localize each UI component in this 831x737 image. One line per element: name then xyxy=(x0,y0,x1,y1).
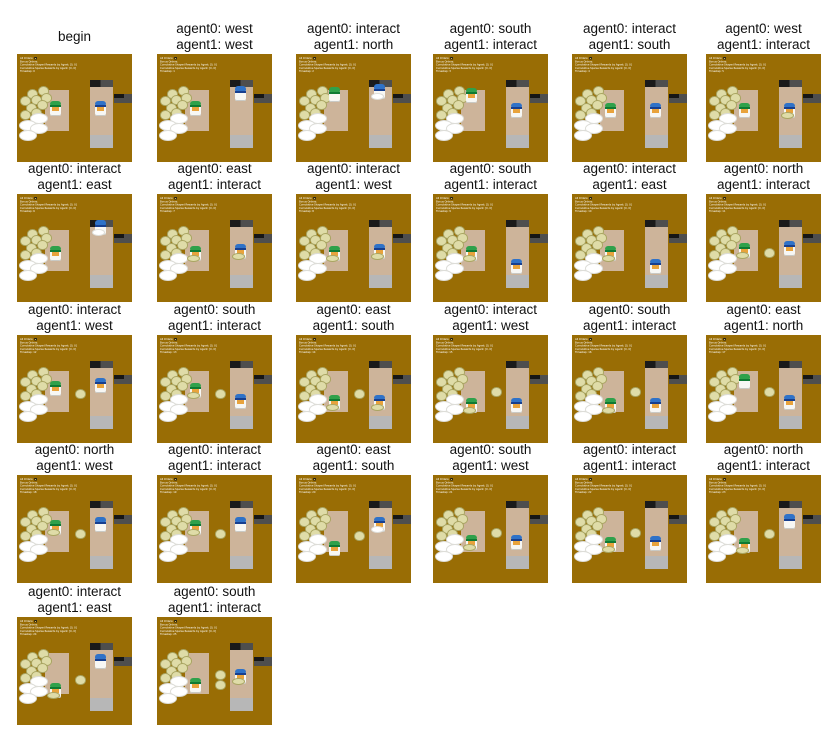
hud-timestep: Timestep: 15 xyxy=(436,351,528,354)
hud-timestep: Timestep: 4 xyxy=(575,70,667,73)
held-onion-icon xyxy=(602,255,615,262)
plate-dispenser-icon xyxy=(574,270,592,281)
step-caption: agent0: northagent1: interact xyxy=(706,440,821,475)
agent1-sprite xyxy=(511,398,522,413)
caption-line-0: agent0: east xyxy=(316,442,390,458)
agent0-body xyxy=(466,98,477,103)
trajectory-cell-12: agent0: interactagent1: westAll Orders:B… xyxy=(17,300,156,443)
held-onion-icon xyxy=(781,112,794,119)
held-plate-icon xyxy=(371,526,384,533)
hud-timestep: Timestep: 2 xyxy=(299,70,391,73)
held-plate-icon xyxy=(371,93,384,100)
pot-right-icon xyxy=(530,234,548,243)
counter-onion-icon xyxy=(75,675,86,685)
agent0-sprite xyxy=(190,246,201,261)
serving-area xyxy=(506,556,529,569)
soup-order-icon xyxy=(723,197,726,200)
agent0-sprite xyxy=(190,383,201,398)
agent1-sprite xyxy=(235,244,246,259)
pot-top-icon xyxy=(230,501,253,508)
agent0-sprite xyxy=(50,381,61,396)
agent0-body xyxy=(50,256,61,261)
soup-order-icon xyxy=(174,197,177,200)
caption-line-1: agent1: interact xyxy=(583,458,676,474)
caption-line-0: agent0: interact xyxy=(28,584,121,600)
serving-area xyxy=(506,275,529,288)
serving-area xyxy=(369,135,392,148)
step-caption: agent0: southagent1: interact xyxy=(572,300,687,335)
soup-order-icon xyxy=(174,57,177,60)
soup-order-icon xyxy=(174,478,177,481)
soup-order-icon xyxy=(313,338,316,341)
agent1-body xyxy=(650,546,661,551)
agent0-sprite xyxy=(329,395,340,410)
counter-onion-icon xyxy=(354,389,365,399)
trajectory-cell-23: agent0: northagent1: interactAll Orders:… xyxy=(706,440,831,583)
caption-line-0: agent0: east xyxy=(726,302,800,318)
pot-top-icon xyxy=(779,220,802,227)
agent1-sprite xyxy=(650,103,661,118)
caption-line-1: agent1: interact xyxy=(717,177,810,193)
soup-order-icon xyxy=(723,478,726,481)
caption-line-0: agent0: south xyxy=(450,21,532,37)
hud-timestep: Timestep: 13 xyxy=(160,351,252,354)
agent1-body xyxy=(650,113,661,118)
pot-right-icon xyxy=(393,234,411,243)
agent1-sprite xyxy=(650,398,661,413)
serving-area xyxy=(645,556,668,569)
pot-right-icon xyxy=(530,375,548,384)
caption-line-0: agent0: interact xyxy=(583,161,676,177)
caption-line-0: agent0: interact xyxy=(444,302,537,318)
trajectory-cell-14: agent0: eastagent1: southAll Orders:Bonu… xyxy=(296,300,435,443)
agent1-body xyxy=(95,661,106,669)
hud-overlay: All Orders:Bonus Orders:Cumulative Shape… xyxy=(299,338,391,354)
held-onion-icon xyxy=(463,407,476,414)
caption-line-0: agent0: east xyxy=(316,302,390,318)
hud-timestep: Timestep: 12 xyxy=(20,351,112,354)
soup-order-icon xyxy=(450,478,453,481)
hud-overlay: All Orders:Bonus Orders:Cumulative Shape… xyxy=(160,478,252,494)
soup-order-icon xyxy=(723,338,726,341)
plate-dispenser-icon xyxy=(159,130,177,141)
soup-order-icon xyxy=(589,57,592,60)
caption-line-1: agent1: interact xyxy=(583,318,676,334)
serving-area xyxy=(779,416,802,429)
pot-right-icon xyxy=(669,94,687,103)
step-caption: agent0: interactagent1: east xyxy=(17,582,132,617)
agent1-sprite xyxy=(95,220,106,235)
counter-onion-icon xyxy=(215,389,226,399)
counter-onion-icon xyxy=(215,670,226,680)
hud-timestep: Timestep: 14 xyxy=(299,351,391,354)
serving-area xyxy=(645,135,668,148)
agent0-sprite xyxy=(739,243,750,258)
counter-onion-icon xyxy=(491,387,502,397)
serving-area xyxy=(90,416,113,429)
pot-top-icon xyxy=(90,361,113,368)
caption-line-0: agent0: interact xyxy=(168,442,261,458)
game-frame: All Orders:Bonus Orders:Cumulative Shape… xyxy=(706,194,821,302)
agent1-body xyxy=(511,408,522,413)
step-caption: agent0: westagent1: west xyxy=(157,19,272,54)
serving-area xyxy=(90,275,113,288)
game-frame: All Orders:Bonus Orders:Cumulative Shape… xyxy=(433,475,548,583)
soup-order-icon xyxy=(34,620,37,623)
agent0-sprite xyxy=(50,520,61,535)
agent0-sprite xyxy=(50,683,61,698)
pot-right-icon xyxy=(393,515,411,524)
hud-timestep: Timestep: 22 xyxy=(575,491,667,494)
caption-line-1: agent1: interact xyxy=(717,37,810,53)
trajectory-cell-11: agent0: northagent1: interactAll Orders:… xyxy=(706,159,831,302)
soup-order-icon xyxy=(589,197,592,200)
plate-dispenser-icon xyxy=(298,130,316,141)
game-frame: All Orders:Bonus Orders:Cumulative Shape… xyxy=(296,54,411,162)
step-caption: agent0: southagent1: west xyxy=(433,440,548,475)
caption-line-0: agent0: interact xyxy=(28,161,121,177)
pot-right-icon xyxy=(393,94,411,103)
counter-onion-icon xyxy=(630,387,641,397)
held-onion-icon xyxy=(232,678,245,685)
agent0-body xyxy=(739,381,750,389)
counter-onion-icon xyxy=(75,389,86,399)
agent1-sprite xyxy=(374,517,385,532)
game-frame: All Orders:Bonus Orders:Cumulative Shape… xyxy=(17,194,132,302)
caption-line-1: agent1: west xyxy=(452,458,529,474)
trajectory-cell-15: agent0: interactagent1: westAll Orders:B… xyxy=(433,300,572,443)
agent1-sprite xyxy=(784,514,795,529)
agent1-body xyxy=(95,388,106,393)
hud-timestep: Timestep: 11 xyxy=(709,210,801,213)
caption-line-1: agent1: west xyxy=(36,318,113,334)
hud-timestep: Timestep: 0 xyxy=(20,70,112,73)
held-onion-icon xyxy=(187,255,200,262)
hud-overlay: All Orders:Bonus Orders:Cumulative Shape… xyxy=(299,478,391,494)
hud-timestep: Timestep: 25 xyxy=(160,633,252,636)
agent0-body xyxy=(329,551,340,556)
pot-right-icon xyxy=(254,657,272,666)
game-frame: All Orders:Bonus Orders:Cumulative Shape… xyxy=(433,335,548,443)
pot-right-icon xyxy=(254,94,272,103)
agent1-sprite xyxy=(650,536,661,551)
plate-dispenser-icon xyxy=(708,551,726,562)
caption-line-1: agent1: north xyxy=(724,318,804,334)
soup-order-icon xyxy=(34,197,37,200)
serving-area xyxy=(230,698,253,711)
plate-dispenser-icon xyxy=(298,551,316,562)
step-caption: agent0: eastagent1: south xyxy=(296,300,411,335)
hud-overlay: All Orders:Bonus Orders:Cumulative Shape… xyxy=(436,197,528,213)
soup-order-icon xyxy=(313,197,316,200)
hud-overlay: All Orders:Bonus Orders:Cumulative Shape… xyxy=(20,478,112,494)
agent0-sprite xyxy=(50,101,61,116)
hud-timestep: Timestep: 17 xyxy=(709,351,801,354)
plate-dispenser-icon xyxy=(708,130,726,141)
game-frame: All Orders:Bonus Orders:Cumulative Shape… xyxy=(433,194,548,302)
hud-timestep: Timestep: 21 xyxy=(436,491,528,494)
agent1-sprite xyxy=(235,669,246,684)
counter-onion-icon xyxy=(630,528,641,538)
held-onion-icon xyxy=(326,255,339,262)
serving-area xyxy=(506,416,529,429)
soup-order-icon xyxy=(450,197,453,200)
agent1-body xyxy=(784,405,795,410)
game-frame: All Orders:Bonus Orders:Cumulative Shape… xyxy=(17,54,132,162)
counter-onion-icon xyxy=(215,529,226,539)
hud-timestep: Timestep: 7 xyxy=(160,210,252,213)
step-caption: agent0: eastagent1: interact xyxy=(157,159,272,194)
trajectory-cell-7: agent0: eastagent1: interactAll Orders:B… xyxy=(157,159,296,302)
agent1-sprite xyxy=(235,86,246,101)
caption-line-0: agent0: interact xyxy=(583,442,676,458)
soup-order-icon xyxy=(174,620,177,623)
soup-order-icon xyxy=(589,338,592,341)
game-frame: All Orders:Bonus Orders:Cumulative Shape… xyxy=(157,54,272,162)
agent0-body xyxy=(190,688,201,693)
agent0-sprite xyxy=(466,535,477,550)
caption-line-0: agent0: west xyxy=(176,21,253,37)
trajectory-cell-8: agent0: interactagent1: westAll Orders:B… xyxy=(296,159,435,302)
counter-onion-icon xyxy=(215,680,226,690)
plate-dispenser-icon xyxy=(19,551,37,562)
plate-dispenser-icon xyxy=(435,411,453,422)
trajectory-cell-19: agent0: interactagent1: interactAll Orde… xyxy=(157,440,296,583)
game-frame: All Orders:Bonus Orders:Cumulative Shape… xyxy=(17,475,132,583)
pot-right-icon xyxy=(669,515,687,524)
serving-area xyxy=(645,275,668,288)
agent0-sprite xyxy=(329,246,340,261)
step-caption: agent0: northagent1: interact xyxy=(706,159,821,194)
pot-right-icon xyxy=(254,375,272,384)
counter-onion-icon xyxy=(75,529,86,539)
pot-right-icon xyxy=(669,375,687,384)
hud-timestep: Timestep: 6 xyxy=(20,210,112,213)
agent1-body xyxy=(95,111,106,116)
pot-right-icon xyxy=(803,234,821,243)
step-caption: agent0: interactagent1: east xyxy=(17,159,132,194)
counter-onion-icon xyxy=(764,387,775,397)
game-frame: All Orders:Bonus Orders:Cumulative Shape… xyxy=(157,617,272,725)
held-onion-icon xyxy=(232,253,245,260)
trajectory-cell-25: agent0: southagent1: interactAll Orders:… xyxy=(157,582,296,725)
held-onion-icon xyxy=(463,255,476,262)
trajectory-cell-1: agent0: westagent1: westAll Orders:Bonus… xyxy=(157,19,296,162)
caption-line-1: agent1: interact xyxy=(444,37,537,53)
pot-top-icon xyxy=(645,220,668,227)
agent1-sprite xyxy=(784,103,795,118)
caption-line-0: agent0: east xyxy=(177,161,251,177)
hud-overlay: All Orders:Bonus Orders:Cumulative Shape… xyxy=(160,620,252,636)
hud-overlay: All Orders:Bonus Orders:Cumulative Shape… xyxy=(20,197,112,213)
held-onion-icon xyxy=(371,253,384,260)
serving-area xyxy=(90,556,113,569)
agent0-sprite xyxy=(190,101,201,116)
serving-area xyxy=(779,556,802,569)
serving-area xyxy=(506,135,529,148)
plate-dispenser-icon xyxy=(159,693,177,704)
step-caption: agent0: interactagent1: interact xyxy=(157,440,272,475)
agent1-sprite xyxy=(95,517,106,532)
game-frame: All Orders:Bonus Orders:Cumulative Shape… xyxy=(572,475,687,583)
game-frame: All Orders:Bonus Orders:Cumulative Shape… xyxy=(157,194,272,302)
game-frame: All Orders:Bonus Orders:Cumulative Shape… xyxy=(296,475,411,583)
trajectory-cell-3: agent0: southagent1: interactAll Orders:… xyxy=(433,19,572,162)
caption-line-0: agent0: interact xyxy=(583,21,676,37)
counter-onion-icon xyxy=(764,529,775,539)
soup-order-icon xyxy=(313,57,316,60)
hud-timestep: Timestep: 8 xyxy=(299,210,391,213)
serving-area xyxy=(230,416,253,429)
agent1-body xyxy=(95,524,106,532)
trajectory-cell-18: agent0: northagent1: westAll Orders:Bonu… xyxy=(17,440,156,583)
step-caption: agent0: southagent1: interact xyxy=(157,582,272,617)
serving-area xyxy=(779,275,802,288)
agent0-body xyxy=(605,113,616,118)
caption-line-1: agent1: west xyxy=(176,37,253,53)
hud-timestep: Timestep: 3 xyxy=(436,70,528,73)
plate-dispenser-icon xyxy=(708,411,726,422)
caption-line-1: agent1: interact xyxy=(168,600,261,616)
pot-right-icon xyxy=(254,234,272,243)
agent0-body xyxy=(50,111,61,116)
caption-line-0: agent0: west xyxy=(725,21,802,37)
hud-overlay: All Orders:Bonus Orders:Cumulative Shape… xyxy=(436,478,528,494)
pot-top-icon xyxy=(506,220,529,227)
pot-right-icon xyxy=(114,234,132,243)
hud-timestep: Timestep: 18 xyxy=(20,491,112,494)
caption-line-1: agent1: west xyxy=(452,318,529,334)
caption-line-1: agent1: interact xyxy=(168,458,261,474)
agent1-body xyxy=(511,113,522,118)
pot-top-icon xyxy=(506,501,529,508)
agent0-sprite xyxy=(466,88,477,103)
trajectory-cell-22: agent0: interactagent1: interactAll Orde… xyxy=(572,440,711,583)
caption-line-1: agent1: interact xyxy=(168,177,261,193)
agent1-sprite xyxy=(374,395,385,410)
trajectory-cell-16: agent0: southagent1: interactAll Orders:… xyxy=(572,300,711,443)
agent1-sprite xyxy=(511,259,522,274)
plate-dispenser-icon xyxy=(19,411,37,422)
plate-dispenser-icon xyxy=(574,411,592,422)
pot-top-icon xyxy=(90,80,113,87)
agent1-body xyxy=(511,269,522,274)
plate-dispenser-icon xyxy=(574,130,592,141)
game-frame: All Orders:Bonus Orders:Cumulative Shape… xyxy=(572,54,687,162)
plate-dispenser-icon xyxy=(19,130,37,141)
step-caption: agent0: southagent1: interact xyxy=(433,159,548,194)
step-caption: begin xyxy=(17,19,132,54)
caption-line-0: agent0: south xyxy=(450,442,532,458)
hud-timestep: Timestep: 9 xyxy=(436,210,528,213)
caption-line-1: agent1: east xyxy=(592,177,666,193)
agent0-sprite xyxy=(605,537,616,552)
held-onion-icon xyxy=(47,692,60,699)
agent1-sprite xyxy=(235,394,246,409)
agent1-body xyxy=(511,545,522,550)
hud-overlay: All Orders:Bonus Orders:Cumulative Shape… xyxy=(20,57,112,73)
plate-dispenser-icon xyxy=(574,551,592,562)
pot-right-icon xyxy=(114,94,132,103)
caption-line-0: agent0: north xyxy=(724,442,804,458)
pot-top-icon xyxy=(369,220,392,227)
pot-top-icon xyxy=(230,643,253,650)
caption-line-0: begin xyxy=(58,29,91,45)
soup-order-icon xyxy=(34,478,37,481)
pot-right-icon xyxy=(114,375,132,384)
step-caption: agent0: southagent1: interact xyxy=(433,19,548,54)
serving-area xyxy=(645,416,668,429)
game-frame: All Orders:Bonus Orders:Cumulative Shape… xyxy=(157,475,272,583)
soup-order-icon xyxy=(174,338,177,341)
agent1-body xyxy=(784,521,795,529)
soup-order-icon xyxy=(723,57,726,60)
caption-line-1: agent1: south xyxy=(589,37,671,53)
step-caption: agent0: interactagent1: interact xyxy=(572,440,687,475)
serving-area xyxy=(369,275,392,288)
caption-line-1: agent1: east xyxy=(37,177,111,193)
step-caption: agent0: westagent1: interact xyxy=(706,19,821,54)
agent1-sprite xyxy=(511,103,522,118)
serving-area xyxy=(230,275,253,288)
game-frame: All Orders:Bonus Orders:Cumulative Shape… xyxy=(157,335,272,443)
agent0-sprite xyxy=(605,398,616,413)
agent0-body xyxy=(739,113,750,118)
agent0-sprite xyxy=(329,541,340,556)
agent0-sprite xyxy=(190,678,201,693)
step-caption: agent0: southagent1: interact xyxy=(157,300,272,335)
plate-dispenser-icon xyxy=(298,411,316,422)
held-onion-icon xyxy=(602,407,615,414)
serving-area xyxy=(230,556,253,569)
game-frame: All Orders:Bonus Orders:Cumulative Shape… xyxy=(296,335,411,443)
caption-line-1: agent1: south xyxy=(313,458,395,474)
pot-top-icon xyxy=(506,80,529,87)
agent1-sprite xyxy=(511,535,522,550)
plate-dispenser-icon xyxy=(435,551,453,562)
agent0-sprite xyxy=(605,103,616,118)
pot-top-icon xyxy=(779,501,802,508)
hud-overlay: All Orders:Bonus Orders:Cumulative Shape… xyxy=(709,478,801,494)
game-frame: All Orders:Bonus Orders:Cumulative Shape… xyxy=(572,194,687,302)
caption-line-0: agent0: north xyxy=(724,161,804,177)
caption-line-1: agent1: interact xyxy=(717,458,810,474)
caption-line-0: agent0: south xyxy=(450,161,532,177)
caption-line-0: agent0: north xyxy=(35,442,115,458)
held-onion-icon xyxy=(187,392,200,399)
agent0-sprite xyxy=(466,398,477,413)
plate-dispenser-icon xyxy=(19,693,37,704)
counter-onion-icon xyxy=(354,531,365,541)
agent0-sprite xyxy=(190,520,201,535)
step-caption: agent0: eastagent1: north xyxy=(706,300,821,335)
game-frame: All Orders:Bonus Orders:Cumulative Shape… xyxy=(296,194,411,302)
caption-line-1: agent1: north xyxy=(314,37,394,53)
pot-top-icon xyxy=(369,501,392,508)
hud-overlay: All Orders:Bonus Orders:Cumulative Shape… xyxy=(160,197,252,213)
agent1-sprite xyxy=(95,654,106,669)
caption-line-1: agent1: west xyxy=(36,458,113,474)
trajectory-cell-9: agent0: southagent1: interactAll Orders:… xyxy=(433,159,572,302)
plate-dispenser-icon xyxy=(159,551,177,562)
hud-timestep: Timestep: 20 xyxy=(299,491,391,494)
hud-timestep: Timestep: 5 xyxy=(709,70,801,73)
serving-area xyxy=(90,135,113,148)
pot-top-icon xyxy=(506,361,529,368)
agent0-body xyxy=(329,94,340,102)
held-onion-icon xyxy=(371,404,384,411)
caption-line-1: agent1: interact xyxy=(444,177,537,193)
